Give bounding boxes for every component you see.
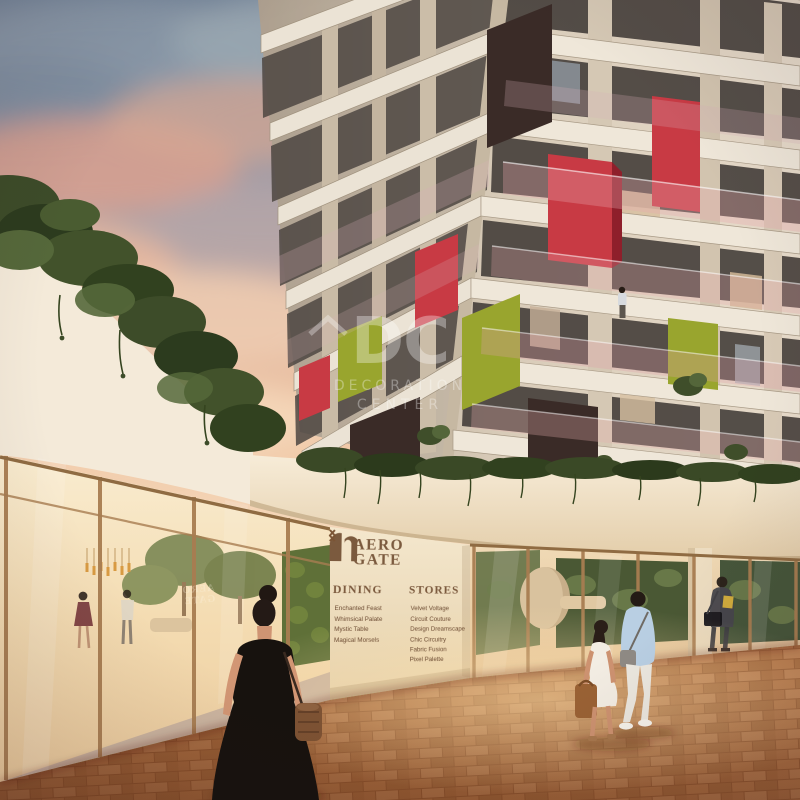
entrance-signage: AERO GATE DINING Enchanted Feast Whimsic… xyxy=(326,529,469,675)
scene-canvas xyxy=(0,0,800,800)
chevron-right-icon xyxy=(329,529,336,542)
dining-list: Enchanted Feast Whimsical Palate Mystic … xyxy=(334,604,383,645)
dining-item: Enchanted Feast xyxy=(334,604,382,614)
brand-name: AERO GATE xyxy=(353,537,404,568)
dining-item: Mystic Table xyxy=(334,625,382,635)
stores-item: Fabric Fusion xyxy=(410,645,465,656)
stores-item: Circuit Couture xyxy=(410,615,465,625)
stores-item: Pixel Palette xyxy=(410,655,465,666)
vignette xyxy=(0,0,800,800)
brand-line2: GATE xyxy=(353,553,404,569)
dining-column: DINING Enchanted Feast Whimsical Palate … xyxy=(332,582,383,666)
dining-item: Whimsical Palate xyxy=(334,615,382,625)
dining-header: DINING xyxy=(333,582,383,597)
brand-lockup: AERO GATE xyxy=(353,537,469,568)
stores-item: Chic Circuitry xyxy=(410,635,465,645)
dining-item: Magical Morsels xyxy=(334,635,382,646)
stores-item: Velvet Voltage xyxy=(410,605,465,615)
architectural-render: DC DECORATION CENTER AERO GATE DINING En… xyxy=(0,0,800,800)
stores-header: STORES xyxy=(409,583,466,598)
stores-title: STORES xyxy=(409,583,460,598)
directory: DINING Enchanted Feast Whimsical Palate … xyxy=(332,582,466,666)
stores-item: Design Dreamscape xyxy=(410,625,465,635)
brand-reflection: AERO GATE xyxy=(181,584,216,608)
stores-column: STORES Velvet Voltage Circuit Couture De… xyxy=(408,583,466,666)
dining-title: DINING xyxy=(333,582,383,597)
stores-list: Velvet Voltage Circuit Couture Design Dr… xyxy=(410,605,466,666)
